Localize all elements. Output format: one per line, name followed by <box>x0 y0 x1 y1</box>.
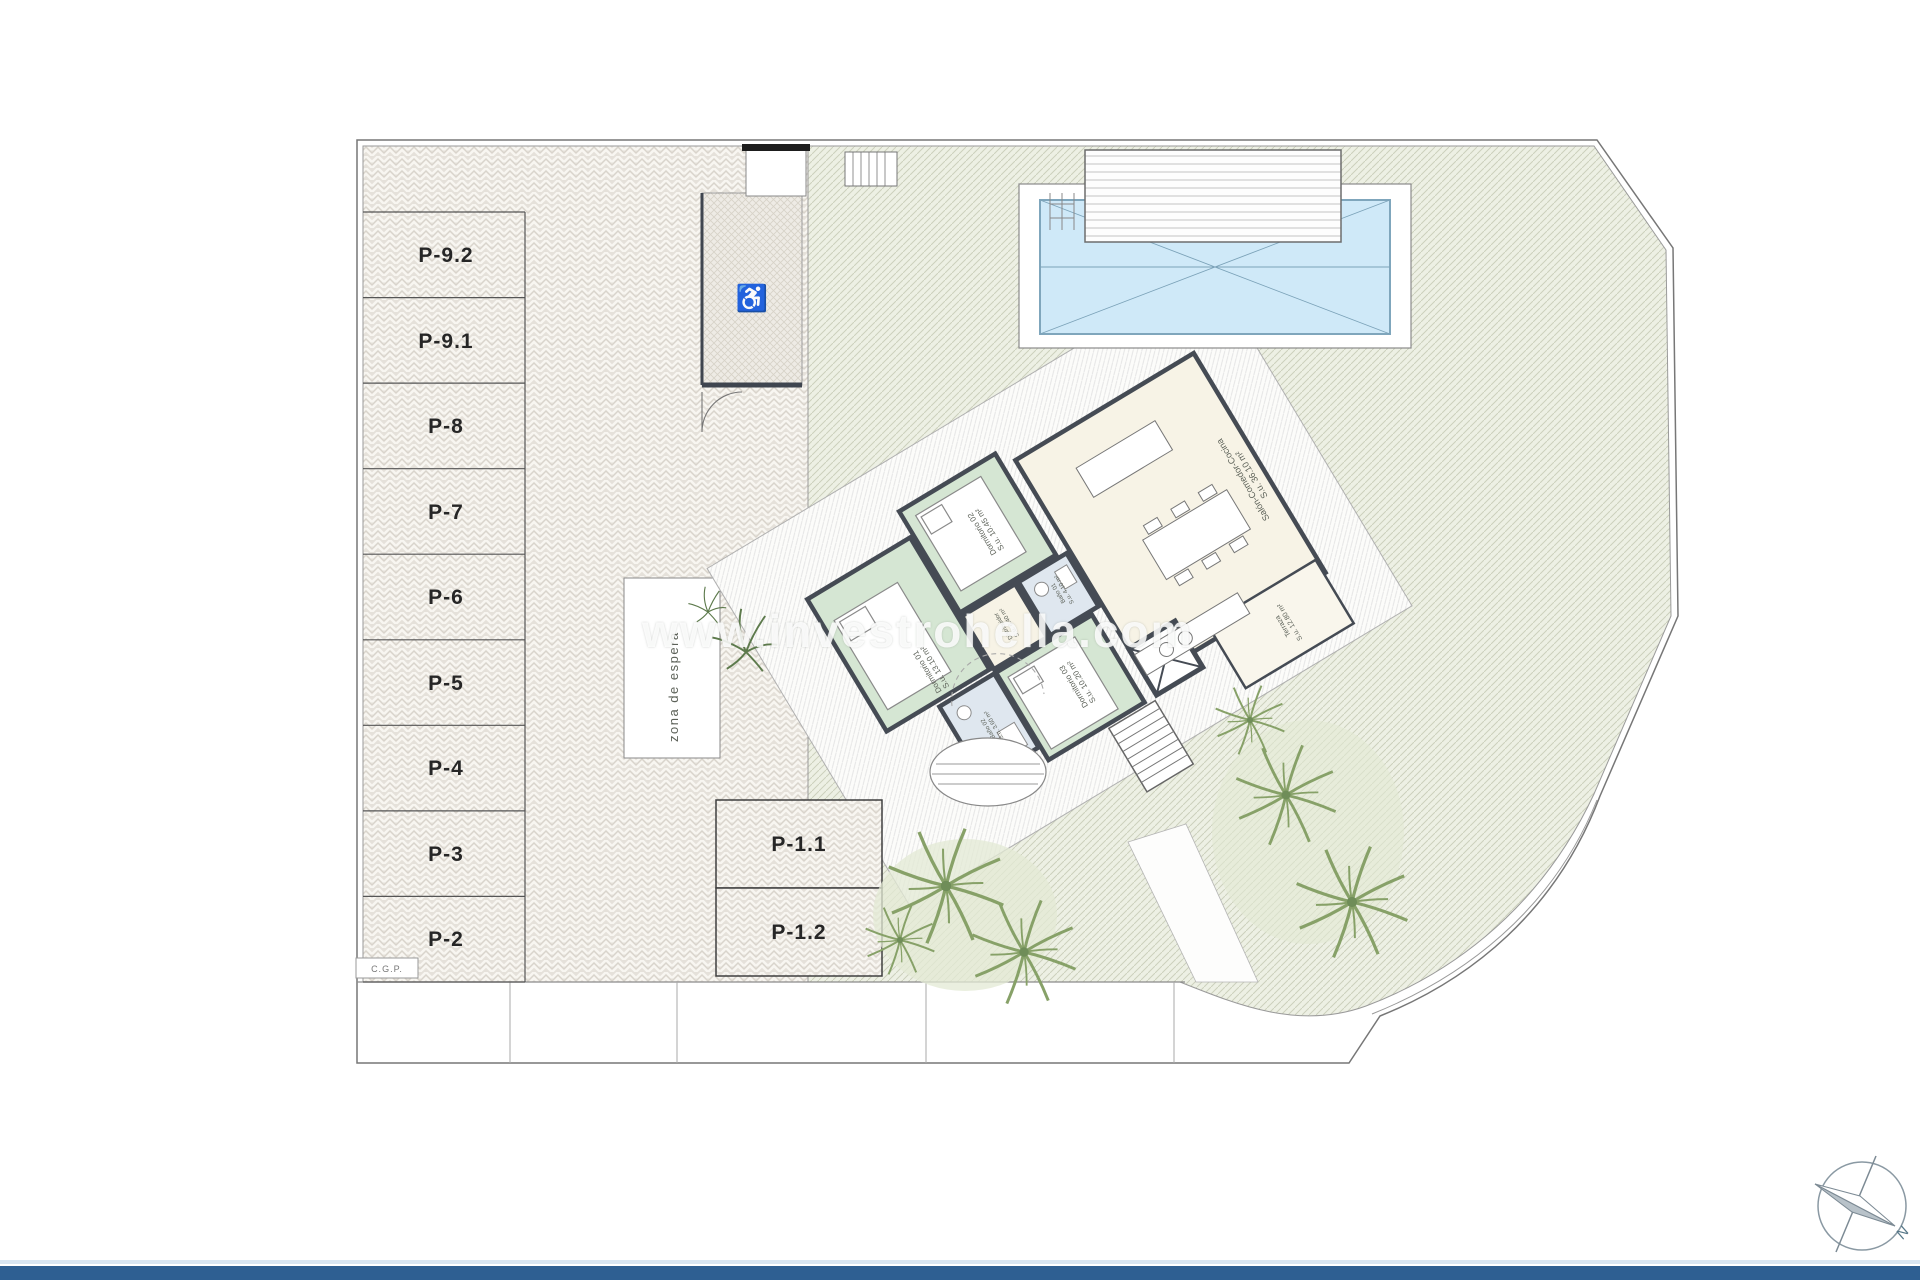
pergola <box>1085 150 1341 242</box>
planting-bed <box>1212 720 1404 944</box>
entry-notch <box>742 144 810 196</box>
wheelchair-icon: ♿ <box>736 283 768 313</box>
parking-stall-label: P-9.2 <box>418 244 473 267</box>
parking-stall-label: P-7 <box>428 501 464 524</box>
site-plan-drawing: P-9.2 P-9.1 P-8 P-7 P-6 P-5 P-4 P-3 P-2 … <box>0 0 1920 1280</box>
planting-bed <box>873 839 1057 991</box>
compass-rose: N <box>1815 1156 1913 1252</box>
cgp-box: C.G.P. <box>356 958 418 978</box>
parking-stall-label: P-1.2 <box>771 921 826 944</box>
site-plan-page: P-9.2 P-9.1 P-8 P-7 P-6 P-5 P-4 P-3 P-2 … <box>0 0 1920 1280</box>
parking-stall-label: P-3 <box>428 843 464 866</box>
entrance-ramp <box>930 738 1046 806</box>
north-label: N <box>1893 1223 1913 1242</box>
vent-grid <box>845 152 897 186</box>
parking-stall-label: P-9.1 <box>418 330 473 353</box>
parking-stall-label: P-1.1 <box>771 833 826 856</box>
parking-stall-label: P-8 <box>428 415 464 438</box>
parking-stall-label: P-2 <box>428 928 464 951</box>
parking-stall-label: P-6 <box>428 586 464 609</box>
lower-parking-stalls: P-1.1 P-1.2 <box>716 800 882 976</box>
parking-stall-label: P-5 <box>428 672 464 695</box>
cgp-label: C.G.P. <box>371 964 403 974</box>
waiting-area-label: zona de espera <box>666 631 681 742</box>
parking-stall-label: P-4 <box>428 757 464 780</box>
footer-bar <box>0 1266 1920 1280</box>
footer-accent-line <box>0 1260 1920 1264</box>
